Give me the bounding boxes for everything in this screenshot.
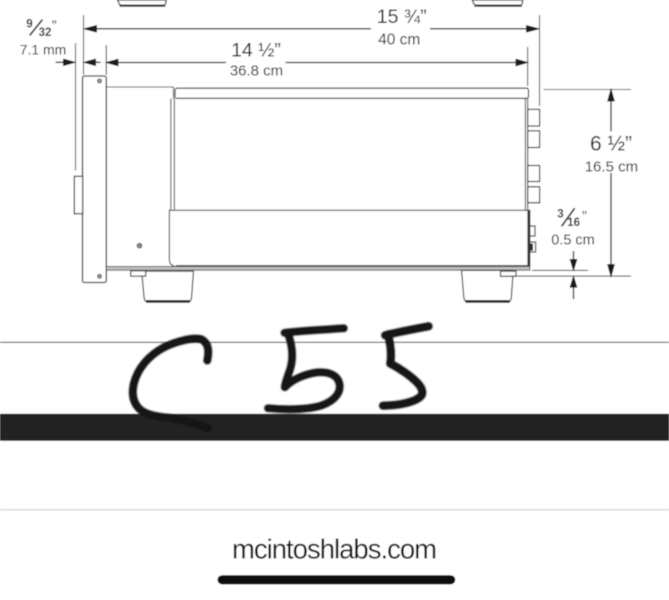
svg-text:16: 16 xyxy=(567,217,580,229)
svg-text:0.5 cm: 0.5 cm xyxy=(551,233,595,249)
svg-text:6 ½”: 6 ½” xyxy=(590,132,632,155)
svg-text:mcintoshlabs.com: mcintoshlabs.com xyxy=(232,534,436,565)
svg-text:16.5 cm: 16.5 cm xyxy=(585,159,638,176)
svg-text:3: 3 xyxy=(557,209,563,221)
svg-text:7.1 mm: 7.1 mm xyxy=(20,42,67,58)
svg-text:9: 9 xyxy=(26,19,32,31)
svg-text:14 ½”: 14 ½” xyxy=(231,40,281,62)
svg-text:32: 32 xyxy=(39,27,52,39)
svg-text:”: ” xyxy=(582,208,587,225)
svg-text:”: ” xyxy=(52,18,57,35)
svg-text:40 cm: 40 cm xyxy=(378,31,420,48)
svg-text:36.8 cm: 36.8 cm xyxy=(230,63,283,80)
svg-text:15 ¾”: 15 ¾” xyxy=(377,6,427,28)
